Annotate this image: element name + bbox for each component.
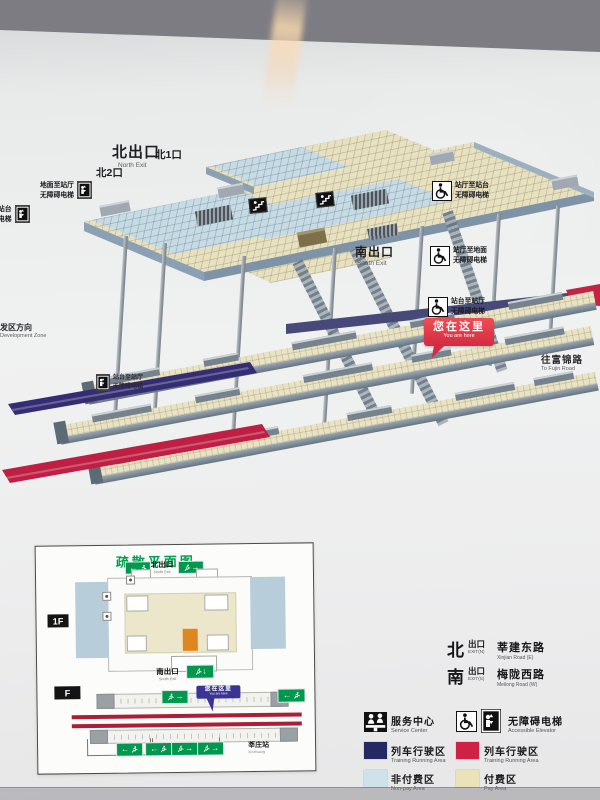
legend-road-n: 莘建东路 Xinjian Road (E) bbox=[497, 639, 545, 661]
legend-train-red: 列车行驶区 Training Running Area bbox=[484, 743, 539, 764]
legend-exit-n: 出口 EXIT(N) bbox=[468, 640, 485, 654]
legend-train-navy-zh: 列车行驶区 bbox=[391, 743, 446, 758]
swatch-nonpay bbox=[364, 770, 387, 787]
legend-road-s-en: Meilong Road (W) bbox=[497, 682, 545, 688]
legend-nonpay-zh: 非付费区 bbox=[391, 771, 435, 786]
legend-service-zh: 服务中心 bbox=[391, 713, 435, 728]
legend-exit-n-dir: 北 bbox=[447, 636, 464, 661]
swatch-train-red bbox=[456, 742, 479, 759]
photo-bottom-shadow bbox=[0, 787, 600, 800]
legend-exit-s-en: EXIT(S) bbox=[468, 676, 485, 681]
elevator-icon bbox=[481, 709, 501, 733]
legend-accessible-en: Accessible Elevator bbox=[508, 728, 563, 734]
legend-train-red-zh: 列车行驶区 bbox=[484, 743, 539, 758]
legend-accessible: 无障碍电梯 Accessible Elevator bbox=[508, 713, 563, 734]
legend: 北 出口 EXIT(N) 莘建东路 Xinjian Road (E) 南 出口 … bbox=[0, 0, 600, 800]
legend-exit-s: 出口 EXIT(S) bbox=[468, 667, 485, 681]
legend-pay-zh: 付费区 bbox=[484, 771, 517, 786]
legend-train-navy-en: Training Running Area bbox=[391, 758, 446, 764]
legend-accessible-zh: 无障碍电梯 bbox=[508, 713, 563, 728]
service-center-icon bbox=[364, 712, 387, 732]
swatch-pay bbox=[456, 770, 479, 787]
legend-exit-s-zh: 出口 bbox=[468, 667, 485, 676]
legend-road-n-en: Xinjian Road (E) bbox=[497, 655, 545, 661]
legend-road-n-zh: 莘建东路 bbox=[497, 639, 545, 655]
legend-train-navy: 列车行驶区 Training Running Area bbox=[391, 743, 446, 764]
legend-road-s: 梅陇西路 Meilong Road (W) bbox=[497, 666, 545, 688]
legend-exit-n-zh: 出口 bbox=[468, 640, 485, 649]
legend-service-en: Service Center bbox=[391, 728, 435, 734]
legend-exit-n-en: EXIT(N) bbox=[468, 649, 485, 654]
wheelchair-icon bbox=[456, 711, 477, 732]
swatch-train-navy bbox=[364, 742, 387, 759]
legend-service: 服务中心 Service Center bbox=[391, 713, 435, 734]
photo-of-station-map-sign: 北出口 North Exit 北2口 北1口 南出口 South Exit 地面… bbox=[0, 0, 600, 800]
legend-exit-s-dir: 南 bbox=[447, 663, 464, 688]
legend-train-red-en: Training Running Area bbox=[484, 758, 539, 764]
station-map-board: 北出口 North Exit 北2口 北1口 南出口 South Exit 地面… bbox=[0, 0, 600, 800]
service-center-icon bbox=[364, 712, 387, 732]
legend-road-s-zh: 梅陇西路 bbox=[497, 666, 545, 682]
elevator-icon bbox=[481, 709, 501, 733]
wheelchair-icon bbox=[457, 712, 476, 731]
